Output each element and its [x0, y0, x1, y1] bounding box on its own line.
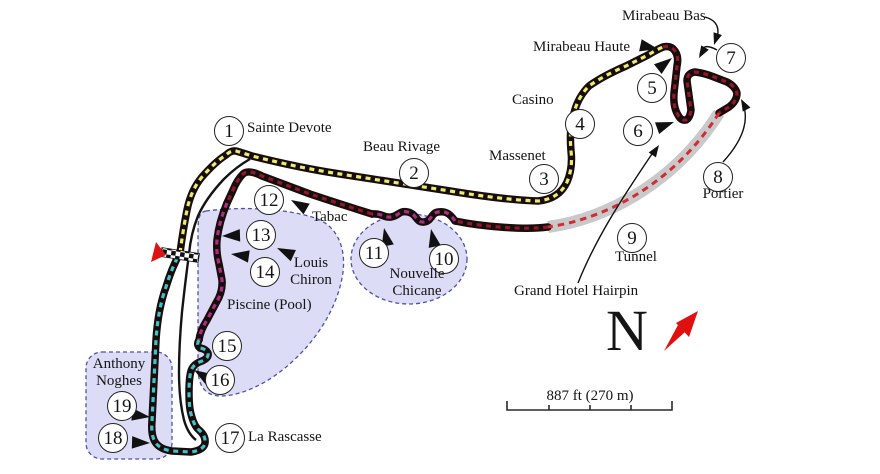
- corner-marker-18: 18: [98, 423, 128, 453]
- label-nouvelle-chicane: Nouvelle Chicane: [374, 266, 460, 301]
- corner-marker-3: 3: [529, 164, 559, 194]
- label-mirabeau-bas: Mirabeau Bas: [622, 8, 706, 25]
- corner-marker-2: 2: [399, 158, 429, 188]
- scale-bar-label: 887 ft (270 m): [520, 388, 660, 405]
- corner-marker-7: 7: [716, 43, 746, 73]
- label-massenet: Massenet: [489, 148, 546, 165]
- corner-marker-5: 5: [637, 73, 667, 103]
- corner-marker-16: 16: [205, 365, 235, 395]
- corner-marker-19: 19: [107, 391, 137, 421]
- arrow-tip-corner-7: [695, 45, 709, 60]
- arrow-corner-5: [654, 53, 676, 74]
- label-casino: Casino: [512, 92, 554, 109]
- corner-marker-4: 4: [565, 109, 595, 139]
- arrow-tip-mirabeau-bas: [710, 32, 722, 46]
- north-arrow-icon: [664, 311, 698, 351]
- corner-marker-14: 14: [250, 257, 280, 287]
- label-piscine: Piscine (Pool): [227, 297, 312, 314]
- corner-marker-11: 11: [359, 238, 389, 268]
- label-tunnel: Tunnel: [606, 249, 666, 266]
- north-letter: N: [606, 302, 648, 360]
- label-sainte-devote: Sainte Devote: [247, 120, 332, 137]
- arrow-corner-12: [288, 195, 310, 215]
- corner-marker-15: 15: [212, 331, 242, 361]
- label-portier: Portier: [693, 186, 753, 203]
- corner-marker-6: 6: [623, 116, 653, 146]
- monaco-circuit-map: 1 2 3 4 5 6 7 8 9 10 11 12 13 14 15 16 1…: [0, 0, 880, 474]
- label-mirabeau-haute: Mirabeau Haute: [533, 39, 630, 56]
- corner-marker-12: 12: [254, 185, 284, 215]
- label-louis-chiron: Louis Chiron: [286, 255, 336, 290]
- corner-marker-17: 17: [215, 423, 245, 453]
- label-tabac: Tabac: [312, 209, 348, 226]
- arrow-corner-6: [655, 116, 676, 134]
- label-la-rascasse: La Rascasse: [248, 429, 322, 446]
- label-anthony-noghes: Anthony Noghes: [89, 356, 149, 391]
- corner-marker-13: 13: [246, 220, 276, 250]
- label-beau-rivage: Beau Rivage: [363, 139, 440, 156]
- corner-marker-1: 1: [214, 116, 244, 146]
